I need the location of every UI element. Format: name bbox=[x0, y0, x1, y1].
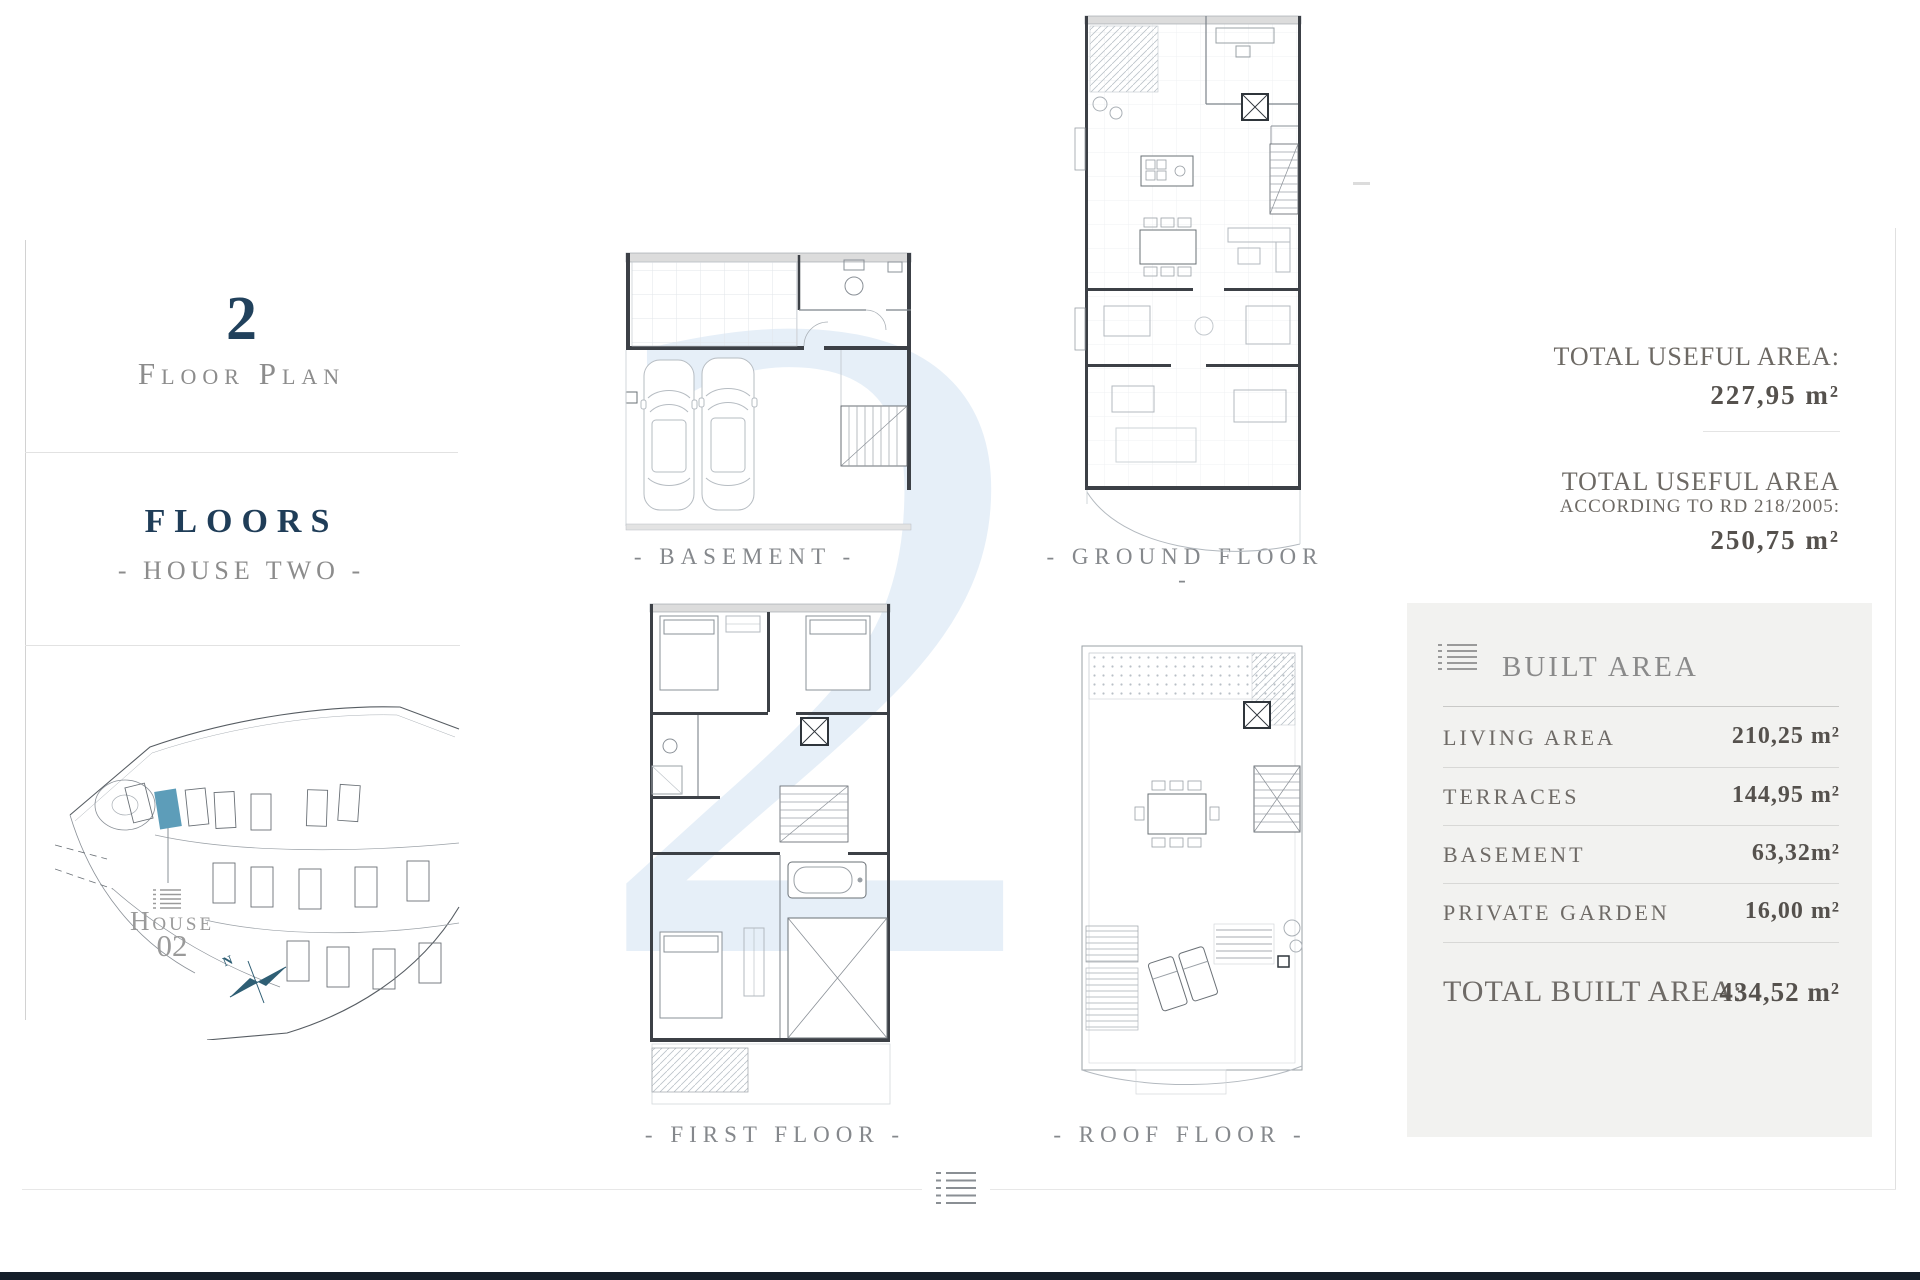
built-area-row-value: 63,32m² bbox=[1557, 840, 1840, 867]
page-number: 2 bbox=[25, 288, 458, 350]
section-title: FLOORS bbox=[25, 503, 458, 541]
ground-floor-plan-drawing bbox=[1056, 8, 1326, 568]
roof-floor-plan-drawing bbox=[1056, 628, 1326, 1108]
highlighted-house bbox=[154, 789, 182, 830]
car-icon bbox=[699, 358, 757, 510]
useful-area-rd-title: TOTAL USEFUL AREA bbox=[1500, 467, 1840, 497]
sidebar-divider-top bbox=[25, 452, 458, 453]
top-right-dash bbox=[1353, 182, 1370, 185]
bottom-bar bbox=[0, 1272, 1920, 1280]
useful-area-title: TOTAL USEFUL AREA: bbox=[1500, 342, 1840, 372]
useful-area-rd-subtitle: ACCORDING TO RD 218/2005: bbox=[1500, 496, 1840, 518]
useful-area-rd-value: 250,75 m² bbox=[1500, 525, 1840, 556]
panel-divider bbox=[1443, 706, 1839, 707]
compass-icon bbox=[230, 961, 286, 1003]
first-floor-plan-drawing bbox=[548, 588, 918, 1118]
list-icon bbox=[1438, 642, 1477, 672]
site-plan-drawing bbox=[55, 695, 460, 1040]
total-built-area-value: 434,52 m² bbox=[1557, 977, 1840, 1008]
car-icon bbox=[641, 360, 697, 510]
built-area-row-value: 210,25 m² bbox=[1557, 723, 1840, 750]
section-subtitle: - HOUSE TWO - bbox=[25, 556, 458, 586]
useful-area-divider bbox=[1703, 431, 1840, 432]
sidebar-divider-bottom bbox=[25, 645, 460, 646]
panel-divider bbox=[1443, 825, 1839, 826]
built-area-title: BUILT AREA bbox=[1502, 651, 1699, 684]
page-right-rule bbox=[1895, 228, 1896, 1189]
useful-area-value: 227,95 m² bbox=[1500, 380, 1840, 411]
page-subtitle: Floor Plan bbox=[25, 356, 458, 392]
built-area-row-value: 16,00 m² bbox=[1557, 898, 1840, 925]
panel-divider bbox=[1443, 942, 1839, 943]
built-area-row-value: 144,95 m² bbox=[1557, 782, 1840, 809]
basement-label: - BASEMENT - bbox=[595, 545, 895, 568]
panel-divider bbox=[1443, 767, 1839, 768]
panel-divider bbox=[1443, 883, 1839, 884]
basement-plan-drawing bbox=[556, 198, 926, 543]
list-icon bbox=[936, 1170, 976, 1206]
roof-floor-label: - ROOF FLOOR - bbox=[1030, 1123, 1330, 1146]
first-floor-label: - FIRST FLOOR - bbox=[625, 1123, 925, 1146]
